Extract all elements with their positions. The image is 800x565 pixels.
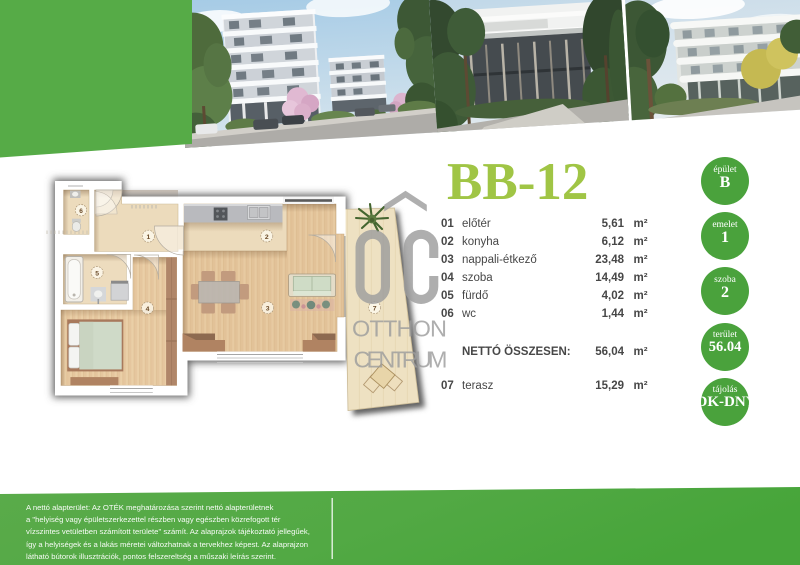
svg-text:OTTHON: OTTHON: [352, 316, 447, 342]
svg-text:2: 2: [265, 234, 269, 241]
svg-text:7: 7: [373, 306, 377, 313]
svg-text:5: 5: [95, 271, 99, 278]
svg-text:CENTRUM: CENTRUM: [354, 347, 448, 373]
svg-text:6: 6: [79, 208, 83, 215]
svg-text:3: 3: [266, 306, 270, 313]
svg-text:1: 1: [147, 234, 151, 241]
svg-text:4: 4: [146, 306, 150, 313]
